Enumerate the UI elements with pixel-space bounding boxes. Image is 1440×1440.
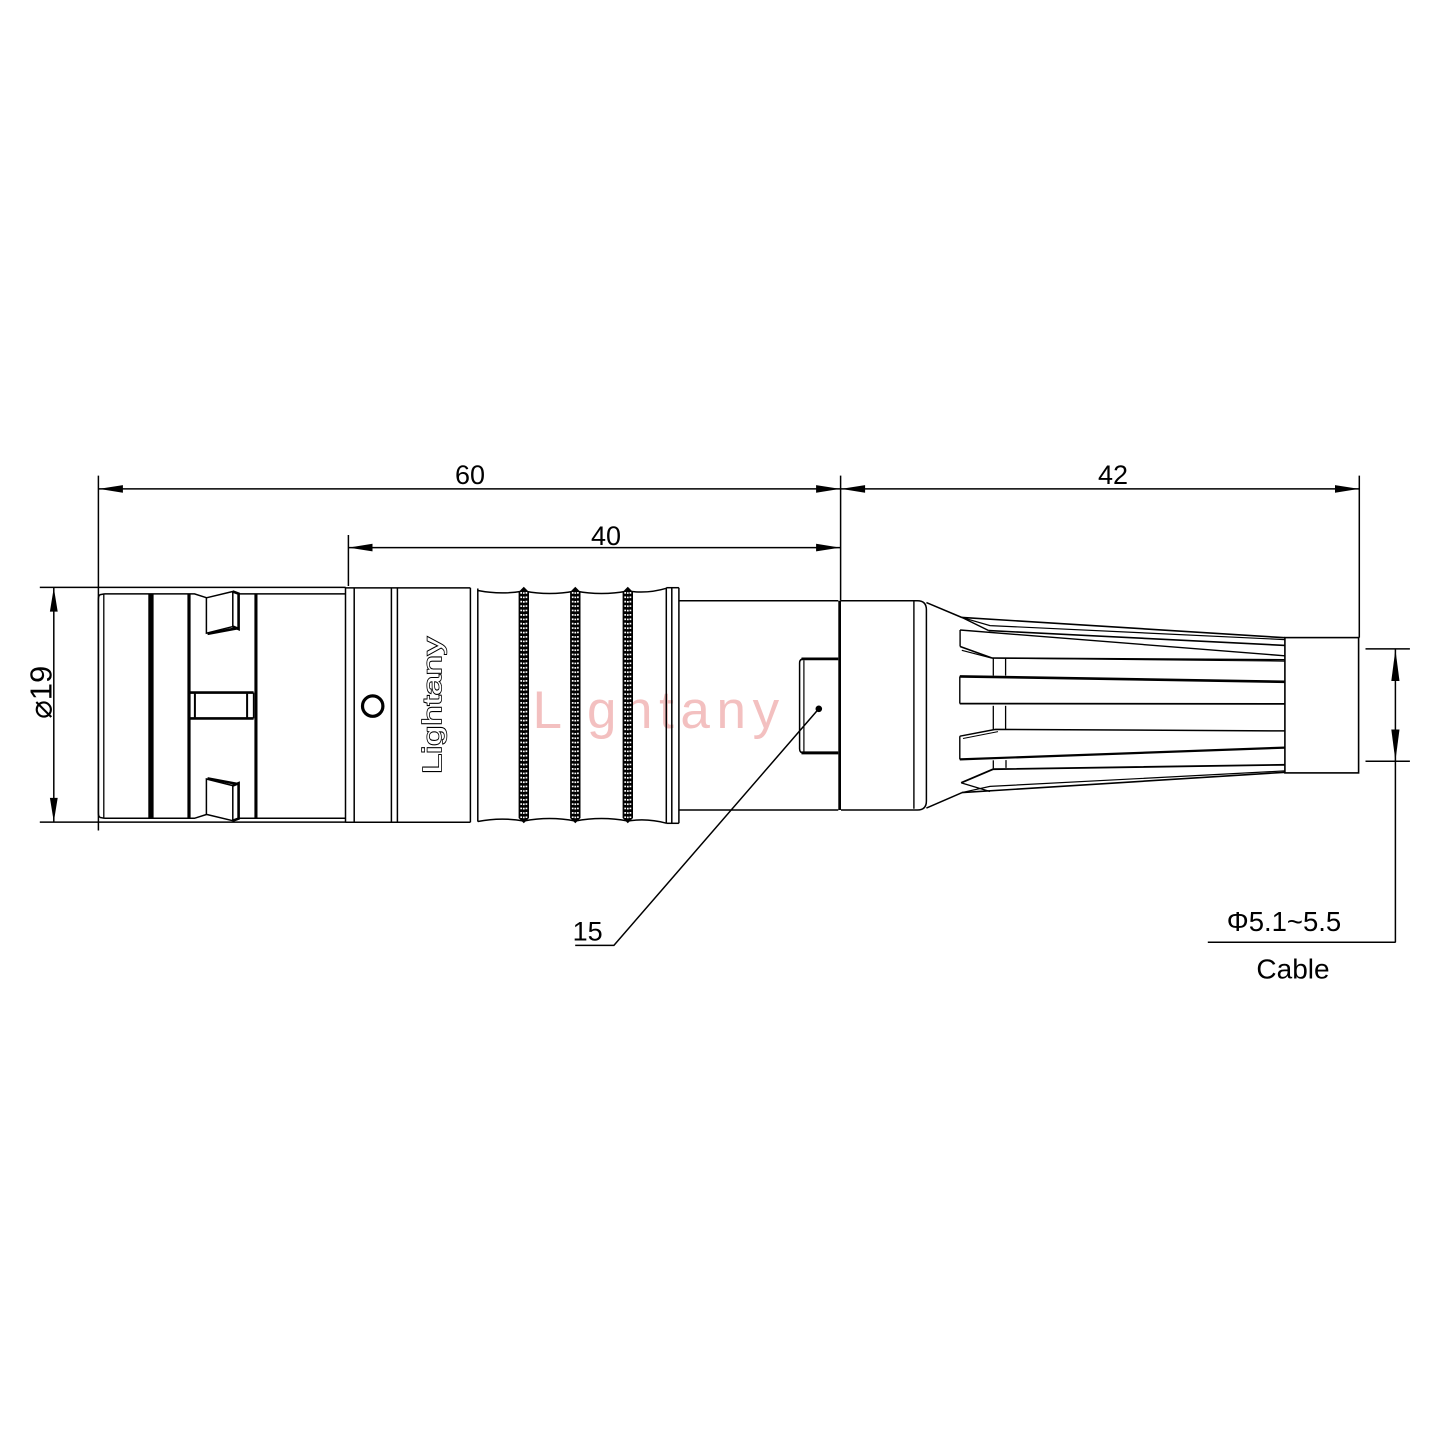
svg-text:⌀19: ⌀19 — [24, 666, 59, 719]
svg-text:Φ5.1~5.5: Φ5.1~5.5 — [1227, 906, 1341, 937]
svg-text:Cable: Cable — [1256, 954, 1329, 985]
svg-text:40: 40 — [591, 521, 621, 551]
svg-text:60: 60 — [455, 460, 485, 490]
svg-text:42: 42 — [1098, 460, 1128, 490]
svg-text:Lightany: Lightany — [417, 637, 447, 774]
svg-text:15: 15 — [573, 916, 603, 946]
